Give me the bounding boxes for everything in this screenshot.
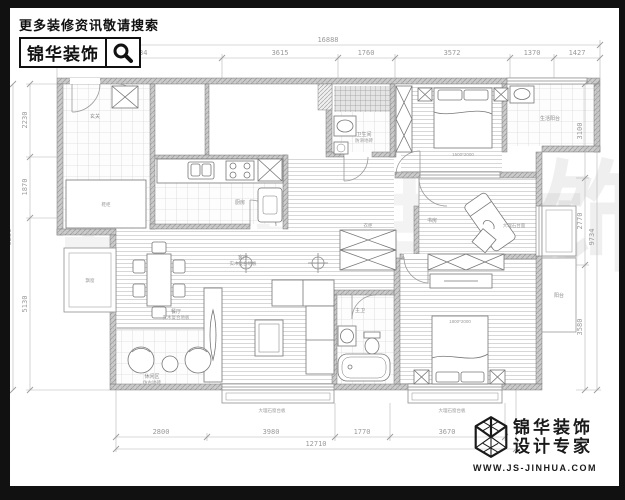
dim-top-seg: 1760 — [358, 49, 375, 57]
dim-bottom-seg: 3670 — [439, 428, 456, 436]
header-logo-block: 更多装修资讯敬请搜索 锦华装饰 — [19, 15, 159, 68]
frame-right — [619, 0, 625, 500]
header-slogan: 更多装修资讯敬请搜索 — [19, 15, 159, 34]
label-dining-note: 实木复合地板 — [163, 314, 190, 321]
footer-brand-line1: 锦华装饰 — [513, 418, 593, 437]
wall — [57, 229, 116, 235]
dining-table — [147, 254, 171, 306]
dining-chair — [152, 242, 166, 253]
round-chair — [185, 347, 211, 373]
label-bath1: 卫生间 — [356, 131, 371, 138]
wall — [536, 152, 542, 206]
label-sill-note: 大理石窗台板 — [259, 407, 286, 414]
dining-chair — [133, 260, 145, 273]
round-chair — [128, 347, 154, 373]
label-bay-note: 大理石台面 — [503, 222, 526, 229]
dim-left-seg: 5130 — [21, 296, 29, 313]
wall — [283, 155, 288, 229]
dim-right-seg: 3100 — [576, 123, 584, 140]
label-living: 客厅 — [238, 254, 248, 261]
label-leisure-note: 仿古地砖 — [143, 379, 161, 386]
label-living-note: 实木复合地板 — [230, 260, 257, 267]
wall — [414, 206, 419, 258]
label-left-bay: 飘窗 — [86, 277, 95, 284]
label-dining: 餐厅 — [171, 308, 181, 315]
dim-left-seg: 2230 — [21, 112, 29, 129]
bottom-bay-inner — [226, 393, 330, 400]
dim-right-seg: 2770 — [576, 213, 584, 230]
dim-right-total: 9734 — [588, 229, 596, 246]
dim-top-seg: 1370 — [524, 49, 541, 57]
pillow — [436, 372, 459, 382]
brand-name: 锦华装饰 — [21, 40, 105, 65]
wall — [150, 84, 155, 229]
dim-bottom-seg: 1770 — [354, 428, 371, 436]
stove — [226, 161, 254, 180]
label-master-size: 1800*2000 — [449, 319, 471, 324]
footer-site-url: WWW.JS-JINHUA.COM — [473, 463, 609, 473]
dim-bottom-seg: 2800 — [153, 428, 170, 436]
wall — [57, 84, 63, 235]
pillow — [464, 90, 488, 100]
wall — [155, 155, 287, 159]
wall — [536, 256, 542, 384]
label-entry: 玄关 — [90, 113, 100, 120]
dim-right-seg: 3580 — [576, 319, 584, 336]
label-hall-closet: 衣柜 — [364, 222, 373, 229]
wall — [542, 146, 600, 152]
dim-top-seg: 3615 — [272, 49, 289, 57]
round-table — [162, 356, 178, 372]
door-opening — [70, 78, 100, 84]
label-sill-note: 大理石窗台板 — [439, 407, 466, 414]
door-opening — [404, 254, 428, 259]
footer-logo-block: 锦华装饰 设计专家 WWW.JS-JINHUA.COM — [473, 414, 609, 473]
wall — [332, 290, 394, 295]
pillow — [461, 372, 484, 382]
label-balcony: 阳台 — [554, 292, 564, 299]
cube-logo-icon — [473, 414, 509, 460]
wall — [150, 224, 250, 229]
brand-box: 锦华装饰 — [19, 37, 141, 68]
bottom-bay-inner — [412, 393, 498, 400]
footer-row: 锦华装饰 设计专家 — [473, 414, 609, 460]
dim-top-total: 16888 — [317, 36, 338, 44]
label-kitchen: 厨房 — [235, 199, 245, 206]
wardrobe — [396, 86, 412, 152]
pillow — [438, 90, 462, 100]
wall — [390, 84, 395, 157]
dining-chair — [173, 260, 185, 273]
toilet-tank — [364, 332, 380, 338]
dining-chair — [133, 284, 145, 297]
label-bed1-size: 1500*2000 — [452, 152, 474, 157]
dining-chair — [173, 284, 185, 297]
frame-bottom — [0, 486, 625, 500]
wall — [205, 84, 209, 155]
toilet — [365, 338, 379, 354]
frame-top — [0, 0, 625, 8]
frame-left — [0, 0, 10, 500]
footer-brand-line2: 设计专家 — [513, 437, 593, 456]
shower-floor — [334, 86, 390, 112]
right-bay-inner — [546, 210, 572, 252]
label-bath1-note: 防滑地砖 — [355, 137, 373, 144]
dim-bottom-seg: 3980 — [263, 428, 280, 436]
dim-bottom-total: 12710 — [305, 440, 326, 448]
label-bath2: 主卫 — [355, 307, 365, 314]
duct-shaft — [318, 84, 332, 110]
master-wardrobe — [428, 254, 504, 270]
magnifier-icon — [107, 39, 139, 66]
dim-left-seg: 1870 — [21, 179, 29, 196]
label-laundry: 生活阳台 — [540, 115, 560, 122]
label-leisure: 休闲区 — [144, 373, 159, 380]
wall — [394, 258, 400, 384]
dim-top-seg: 3572 — [444, 49, 461, 57]
dim-top-seg: 1427 — [569, 49, 586, 57]
label-study: 书房 — [427, 217, 437, 224]
label-shoe-cabinet: 鞋柜 — [102, 201, 111, 208]
